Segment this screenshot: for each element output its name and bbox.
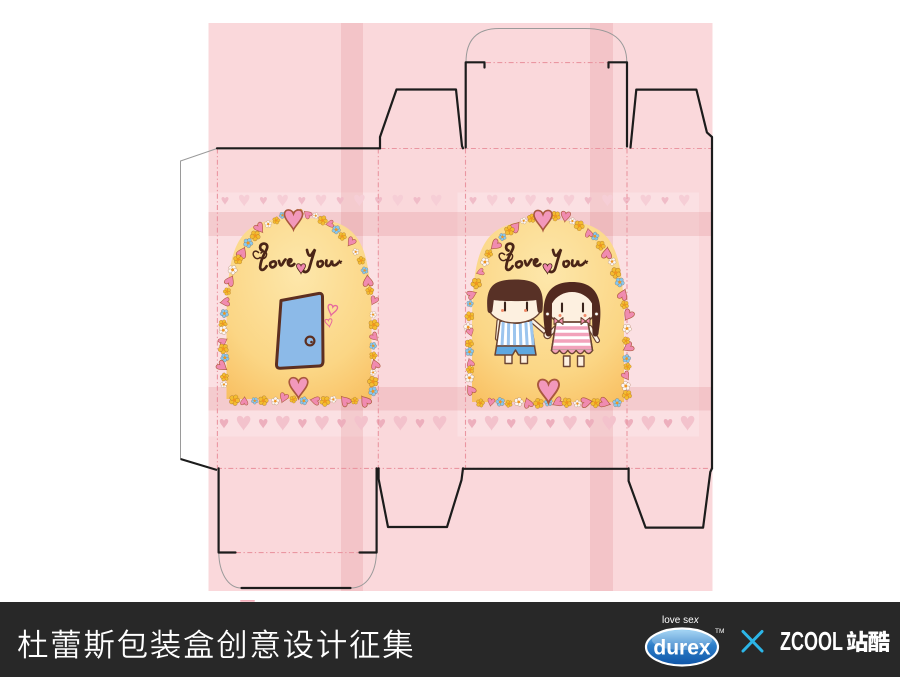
svg-text:ZCOOL: ZCOOL <box>780 626 843 656</box>
svg-text:durex: durex <box>653 637 711 660</box>
svg-text:TM: TM <box>715 628 724 635</box>
svg-text:love sex: love sex <box>662 615 700 626</box>
